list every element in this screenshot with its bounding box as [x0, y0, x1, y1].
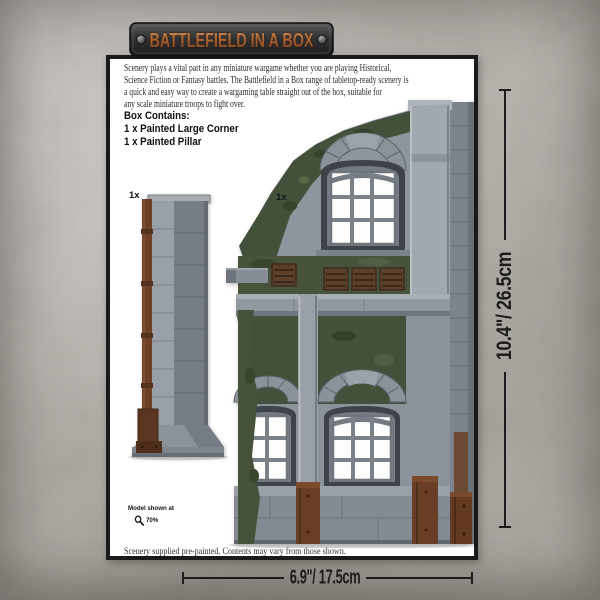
width-dimension-cap: [182, 572, 184, 584]
corner-count-label: 1x: [276, 192, 287, 203]
height-dimension-label: 10.4"/ 26.5cm: [493, 252, 517, 360]
wooden-shutter: [272, 264, 296, 286]
width-dimension-cap: [471, 572, 473, 584]
scale-note-text: Model shown at: [128, 505, 191, 512]
height-dimension-line: [504, 90, 506, 240]
intro-line: Science Fiction or Fantasy battles. The …: [124, 75, 443, 87]
protruding-stone-beam: [226, 268, 268, 283]
height-dimension-line: [504, 372, 506, 528]
magnifier-icon: [134, 515, 144, 526]
rivet-icon-right: [318, 35, 327, 44]
box-contains-item: 1 x Painted Pillar: [124, 136, 239, 149]
header-plate: BATTLEFIELD IN A BOX: [129, 22, 334, 57]
scale-note: Model shown at 70%: [128, 505, 191, 526]
height-dimension-cap: [499, 526, 511, 528]
rust-column-base: [412, 476, 438, 544]
height-dimension-cap: [499, 89, 511, 91]
keystone: [346, 133, 380, 150]
rust-column-base: [296, 482, 320, 544]
wooden-shutter: [324, 268, 348, 290]
pillar-count-label: 1x: [129, 190, 140, 201]
pillar-shaft: [148, 195, 210, 425]
rivet-icon-left: [137, 35, 146, 44]
wooden-shutter: [380, 268, 404, 290]
box-contains-list: Box Contains: 1 x Painted Large Corner 1…: [124, 110, 239, 149]
box-contains-heading: Box Contains:: [124, 110, 239, 123]
box-contains-item: 1 x Painted Large Corner: [124, 123, 239, 136]
width-dimension-line: [183, 577, 284, 579]
width-dimension-line: [366, 577, 472, 579]
pillar-model-image: [126, 193, 230, 463]
wooden-shutter: [352, 268, 376, 290]
large-corner-model-image: [224, 96, 476, 548]
intro-line: Scenery plays a vital part in any miniat…: [124, 63, 443, 75]
floor-band: [236, 294, 450, 316]
scale-percent: 70%: [146, 517, 158, 524]
brand-title: BATTLEFIELD IN A BOX: [150, 29, 314, 52]
width-dimension-label: 6.9"/ 17.5cm: [290, 567, 361, 590]
footer-note: Scenery supplied pre-painted. Contents m…: [124, 546, 346, 556]
